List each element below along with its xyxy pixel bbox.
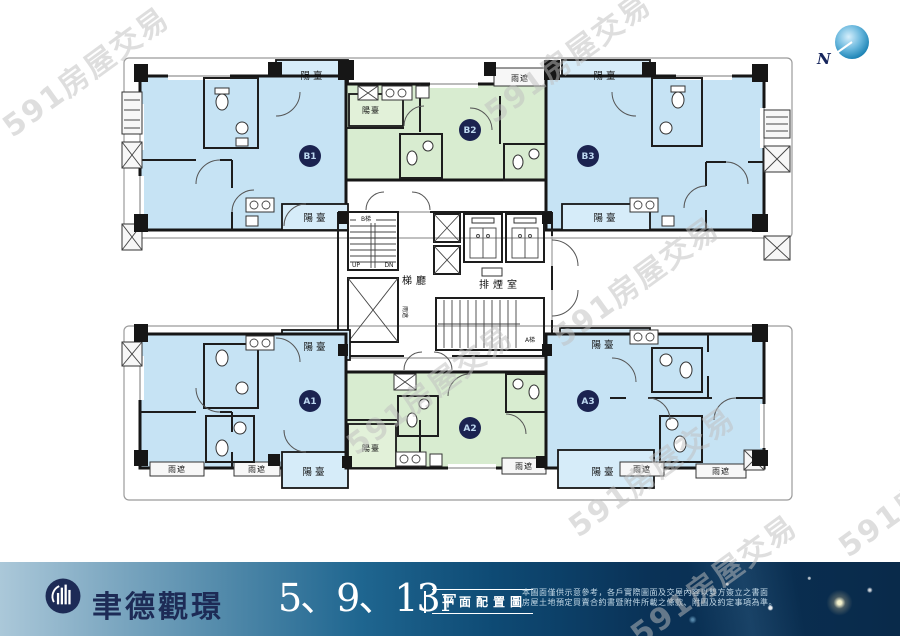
stair-dn-label: DN bbox=[384, 262, 393, 269]
plan-type: 平面配置圖 bbox=[424, 589, 533, 614]
unit-a3: A3 陽臺 陽臺 雨遮 雨遮 bbox=[546, 328, 768, 488]
stair-b-label: B梯 bbox=[361, 215, 371, 223]
balcony-label: 陽臺 bbox=[302, 466, 327, 478]
stair-hall-label: 梯廳 bbox=[402, 274, 430, 287]
unit-b1: B1 陽臺 陽臺 bbox=[136, 60, 348, 230]
floor-plan-image: B1 陽臺 陽臺 B2 陽臺 雨遮 bbox=[0, 0, 900, 562]
brand-name: 聿德觀璟 bbox=[92, 582, 224, 626]
rain-cover-label: 雨遮 bbox=[515, 461, 533, 471]
disclaimer: 本圖面僅供示意參考，各戶實際圖面及交屋內容以雙方簽立之書面 房屋土地預定買賣合約… bbox=[522, 588, 777, 608]
floor-plan-page: 591房屋交易 591房屋交易 591房屋交易 591房屋交易 591房屋交易 … bbox=[0, 0, 900, 636]
rain-cover-label: 雨遮 bbox=[168, 464, 186, 474]
stair-up-label: UP bbox=[352, 262, 360, 269]
rain-cover-label: 雨遮 bbox=[511, 73, 529, 83]
balcony-label: 陽臺 bbox=[591, 466, 616, 478]
elevator-icon bbox=[464, 214, 502, 262]
disclaimer-line-2: 房屋土地預定買賣合約書暨附件所載之條款、附圖及約定事項為準。 bbox=[522, 598, 777, 608]
unit-badge-b2-label: B2 bbox=[463, 126, 476, 136]
smoke-room-label: 排煙室 bbox=[479, 278, 521, 291]
floor-numbers-text: 5、9、13 bbox=[278, 576, 439, 620]
unit-badge-a1-label: A1 bbox=[303, 397, 316, 407]
disclaimer-line-1: 本圖面僅供示意參考，各戶實際圖面及交屋內容以雙方簽立之書面 bbox=[522, 588, 777, 598]
unit-badge-a3-label: A3 bbox=[581, 397, 594, 407]
plan-type-label: 平面配置圖 bbox=[432, 589, 533, 614]
balcony-label: 陽臺 bbox=[362, 105, 380, 115]
unit-badge-b3-label: B3 bbox=[581, 152, 594, 162]
elevator-icon bbox=[506, 214, 544, 262]
balcony-label: 陽臺 bbox=[593, 70, 618, 82]
compass: N bbox=[816, 25, 869, 68]
unit-b2: B2 陽臺 雨遮 bbox=[346, 68, 546, 180]
balcony-label: 陽臺 bbox=[362, 443, 380, 453]
unit-a2: A2 陽臺 雨遮 bbox=[346, 372, 546, 474]
unit-badge-a2-label: A2 bbox=[463, 424, 476, 434]
rain-cover-label: 雨遮 bbox=[633, 464, 651, 474]
compass-north-label: N bbox=[816, 50, 832, 68]
balcony-label: 陽臺 bbox=[303, 212, 328, 224]
unit-a1: A1 陽臺 陽臺 雨遮 雨遮 bbox=[122, 330, 350, 488]
rain-cover-label: 雨遮 bbox=[248, 464, 266, 474]
balcony-label: 陽臺 bbox=[593, 212, 618, 224]
stair-a-label: A梯 bbox=[525, 336, 535, 344]
rain-cover-label: 雨遮 bbox=[712, 466, 730, 476]
unit-badge-b1-label: B1 bbox=[303, 152, 316, 162]
rain-cover-label: 雨遮 bbox=[401, 306, 409, 318]
balcony-label: 陽臺 bbox=[300, 70, 325, 82]
balcony-label: 陽臺 bbox=[303, 341, 328, 353]
balcony-label: 陽臺 bbox=[591, 339, 616, 351]
plan-type-divider bbox=[424, 591, 426, 613]
brand-logo-icon bbox=[44, 577, 82, 615]
